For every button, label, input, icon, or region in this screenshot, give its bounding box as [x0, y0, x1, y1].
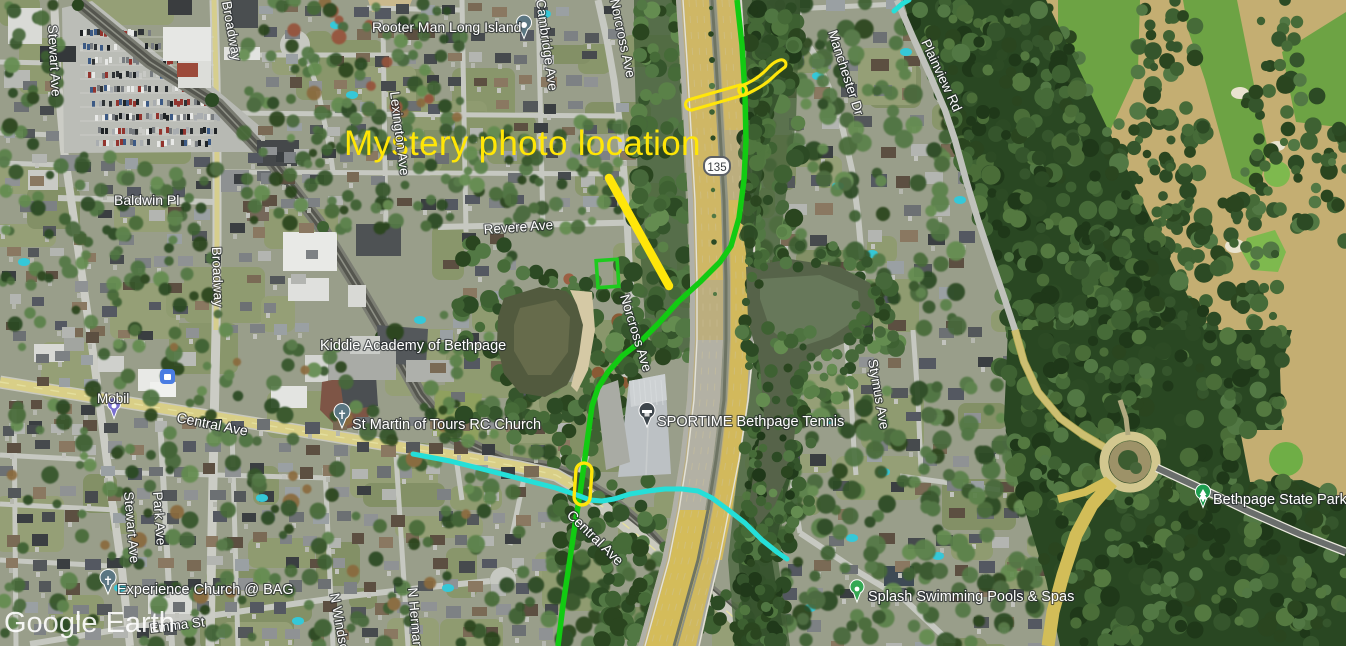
svg-text:Rooter Man Long Island: Rooter Man Long Island	[372, 19, 521, 35]
svg-text:Splash Swimming Pools & Spas: Splash Swimming Pools & Spas	[868, 589, 1074, 605]
svg-text:Experience Church @ BAG: Experience Church @ BAG	[117, 582, 294, 598]
svg-text:Kiddie Academy of Bethpage: Kiddie Academy of Bethpage	[320, 338, 506, 354]
svg-text:✝: ✝	[103, 574, 113, 588]
svg-text:135: 135	[707, 162, 726, 174]
svg-text:Broadway: Broadway	[209, 247, 226, 308]
svg-text:Baldwin Pl: Baldwin Pl	[114, 192, 179, 208]
svg-text:SPORTIME Bethpage Tennis: SPORTIME Bethpage Tennis	[657, 414, 844, 430]
svg-text:✝: ✝	[337, 408, 347, 422]
svg-text:Mobil: Mobil	[97, 391, 129, 406]
svg-text:Google Earth: Google Earth	[4, 607, 175, 639]
svg-text:St Martin of Tours RC Church: St Martin of Tours RC Church	[352, 417, 541, 433]
svg-text:Bethpage State Park B: Bethpage State Park B	[1213, 492, 1346, 508]
